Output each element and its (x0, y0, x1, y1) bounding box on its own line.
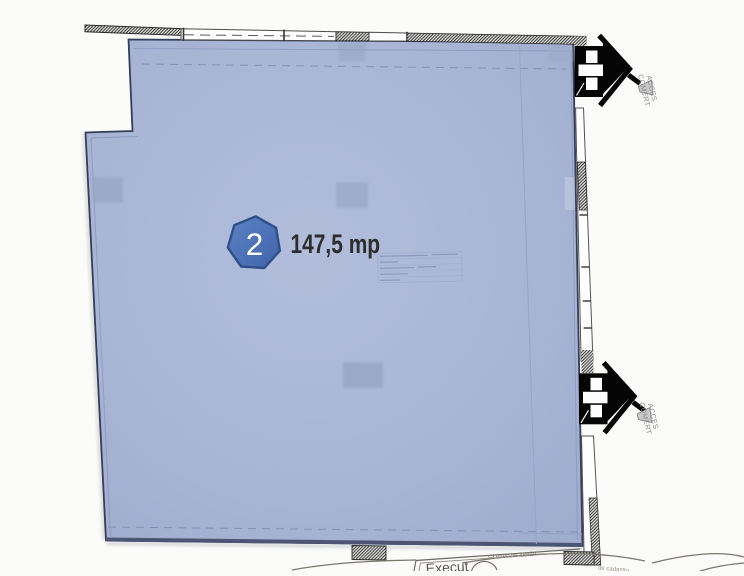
svg-text:147,5 mp: 147,5 mp (291, 230, 381, 260)
svg-text:Execut: Execut (425, 558, 469, 571)
svg-text:2: 2 (246, 226, 264, 262)
